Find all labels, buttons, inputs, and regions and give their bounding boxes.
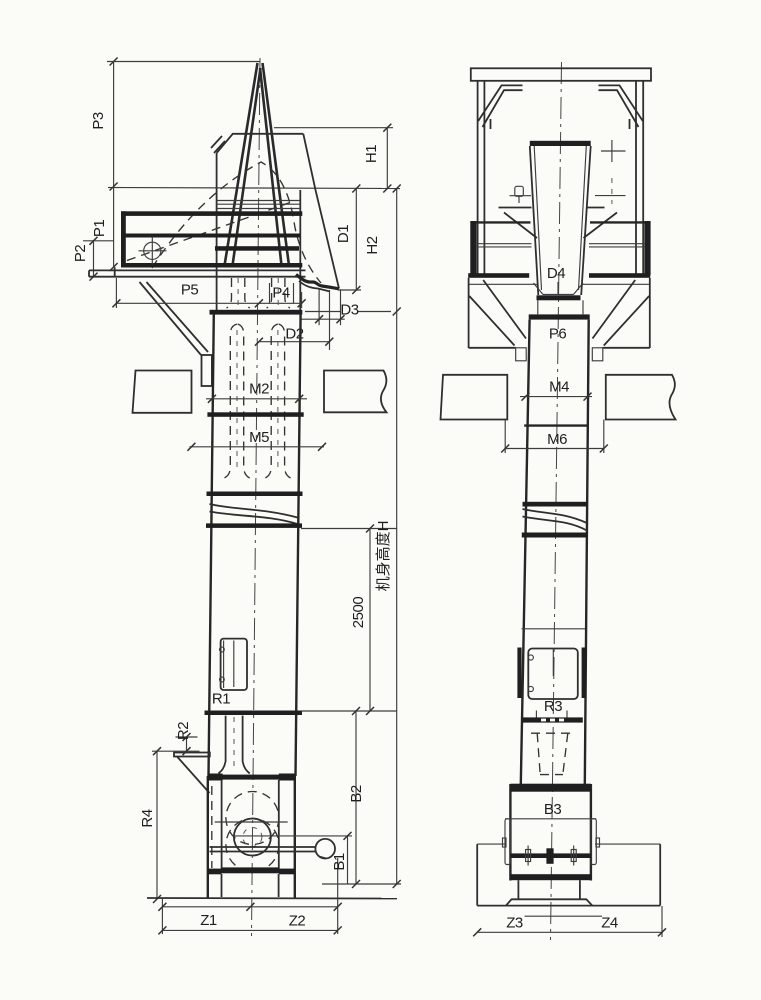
svg-text:P2: P2	[72, 245, 89, 263]
svg-text:R4: R4	[139, 809, 156, 827]
svg-text:M6: M6	[547, 431, 567, 448]
svg-text:P4: P4	[272, 285, 290, 302]
svg-text:R3: R3	[544, 698, 562, 715]
svg-text:P6: P6	[549, 325, 567, 342]
svg-text:P1: P1	[91, 220, 108, 238]
svg-text:P3: P3	[90, 112, 107, 130]
svg-text:R2: R2	[175, 722, 192, 740]
svg-text:B2: B2	[348, 785, 365, 803]
svg-text:机身高度H: 机身高度H	[375, 521, 392, 592]
svg-text:B1: B1	[331, 853, 348, 871]
svg-text:D4: D4	[547, 265, 565, 282]
svg-text:R1: R1	[212, 691, 230, 708]
svg-text:Z1: Z1	[200, 912, 217, 929]
svg-text:B3: B3	[544, 801, 562, 818]
svg-text:M5: M5	[249, 429, 269, 446]
svg-text:Z3: Z3	[506, 914, 523, 931]
svg-text:Z4: Z4	[601, 914, 618, 931]
svg-text:H1: H1	[363, 145, 380, 163]
svg-text:H2: H2	[364, 236, 381, 254]
svg-text:D1: D1	[335, 225, 352, 243]
svg-text:P5: P5	[181, 282, 199, 299]
svg-text:Z2: Z2	[289, 913, 306, 930]
svg-text:M4: M4	[549, 379, 569, 396]
svg-text:2500: 2500	[350, 597, 367, 629]
svg-text:M2: M2	[249, 381, 269, 398]
